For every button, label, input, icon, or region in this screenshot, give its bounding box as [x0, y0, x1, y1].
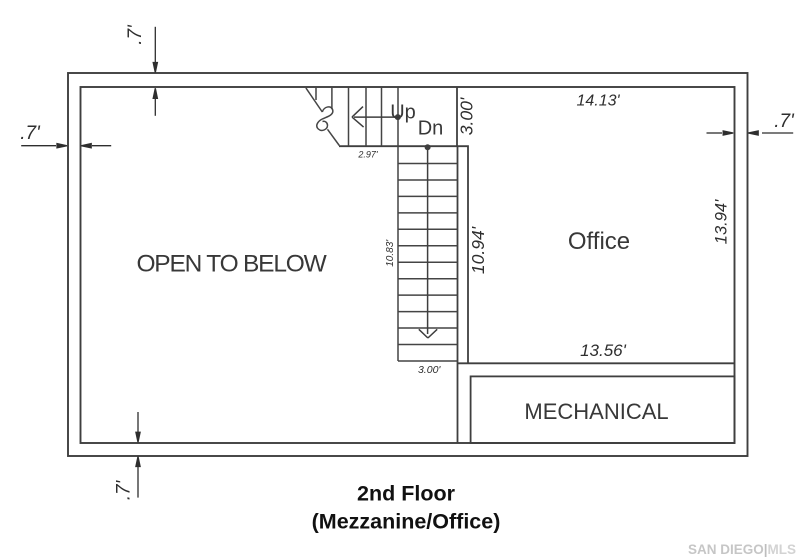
svg-text:MECHANICAL: MECHANICAL [524, 399, 668, 424]
svg-text:10.83': 10.83' [385, 239, 396, 267]
svg-text:2.97': 2.97' [357, 150, 378, 160]
svg-text:.7': .7' [20, 123, 41, 144]
svg-text:.7': .7' [125, 24, 146, 45]
svg-text:(Mezzanine/Office): (Mezzanine/Office) [312, 510, 501, 534]
svg-text:13.56': 13.56' [580, 341, 627, 360]
svg-text:OPEN TO BELOW: OPEN TO BELOW [136, 251, 327, 278]
svg-text:3.00': 3.00' [457, 97, 477, 135]
svg-text:14.13': 14.13' [576, 93, 620, 110]
svg-text:3.00': 3.00' [418, 364, 441, 376]
svg-text:2nd Floor: 2nd Floor [357, 482, 456, 506]
svg-text:13.94': 13.94' [713, 199, 731, 244]
svg-text:SAN DIEGO|MLS: SAN DIEGO|MLS [688, 542, 796, 557]
svg-text:Office: Office [568, 228, 630, 255]
svg-text:.7': .7' [114, 479, 135, 500]
svg-text:.7': .7' [774, 111, 795, 132]
svg-text:Up: Up [390, 102, 416, 124]
svg-text:10.94': 10.94' [468, 226, 488, 274]
svg-text:Dn: Dn [418, 118, 444, 140]
